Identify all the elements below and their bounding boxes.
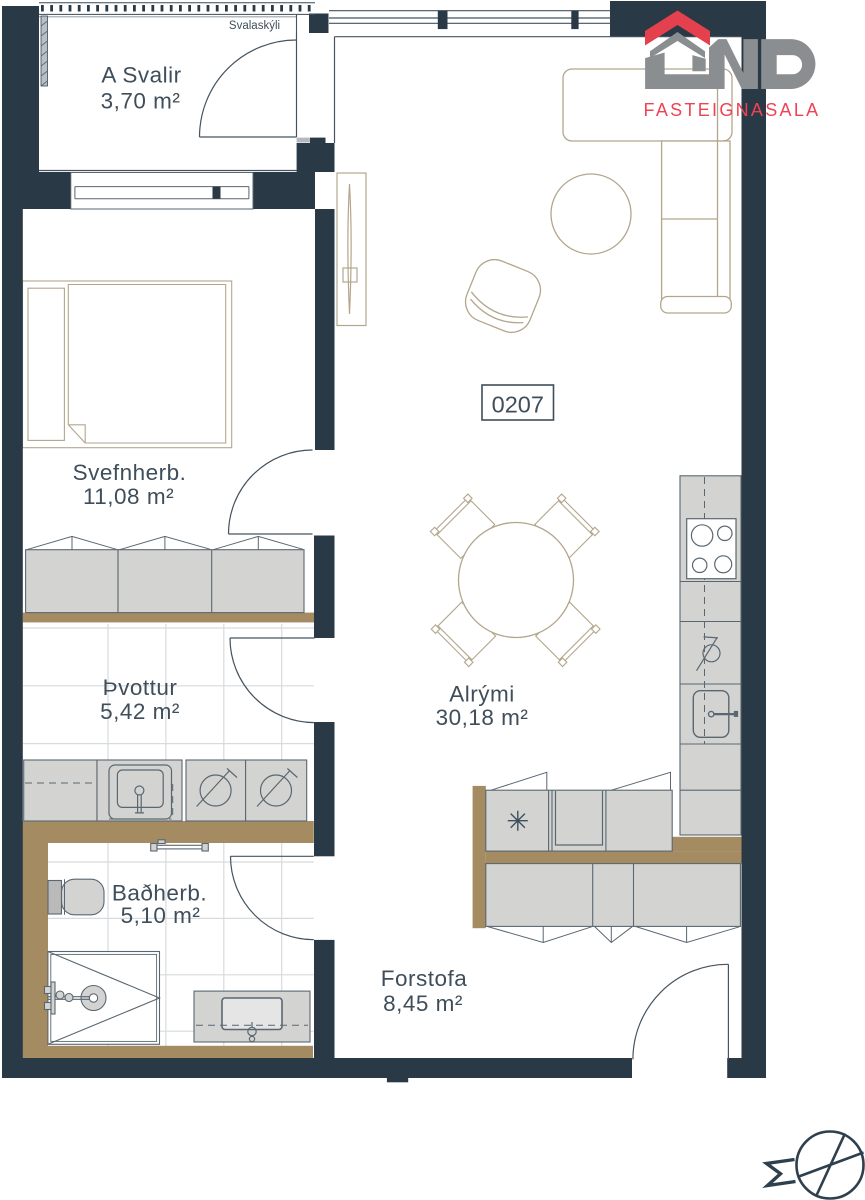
svg-text:8,45 m²: 8,45 m² [383, 991, 463, 1016]
svg-text:A Svalir: A Svalir [101, 63, 181, 88]
svg-text:Alrými: Alrými [449, 682, 515, 707]
svg-text:Baðherb.: Baðherb. [112, 881, 207, 906]
svg-text:5,42 m²: 5,42 m² [100, 699, 180, 724]
svg-text:FASTEIGNASALA: FASTEIGNASALA [644, 100, 821, 120]
svg-text:30,18 m²: 30,18 m² [436, 705, 529, 730]
svg-text:3,70 m²: 3,70 m² [101, 89, 181, 114]
svg-text:Þvottur: Þvottur [103, 675, 178, 700]
svg-text:11,08 m²: 11,08 m² [83, 484, 174, 509]
svg-text:5,10 m²: 5,10 m² [121, 903, 201, 928]
svg-text:Svalaskýli: Svalaskýli [229, 20, 280, 32]
svg-text:Svefnherb.: Svefnherb. [73, 460, 187, 485]
svg-text:Forstofa: Forstofa [381, 966, 468, 991]
svg-text:0207: 0207 [492, 392, 544, 418]
